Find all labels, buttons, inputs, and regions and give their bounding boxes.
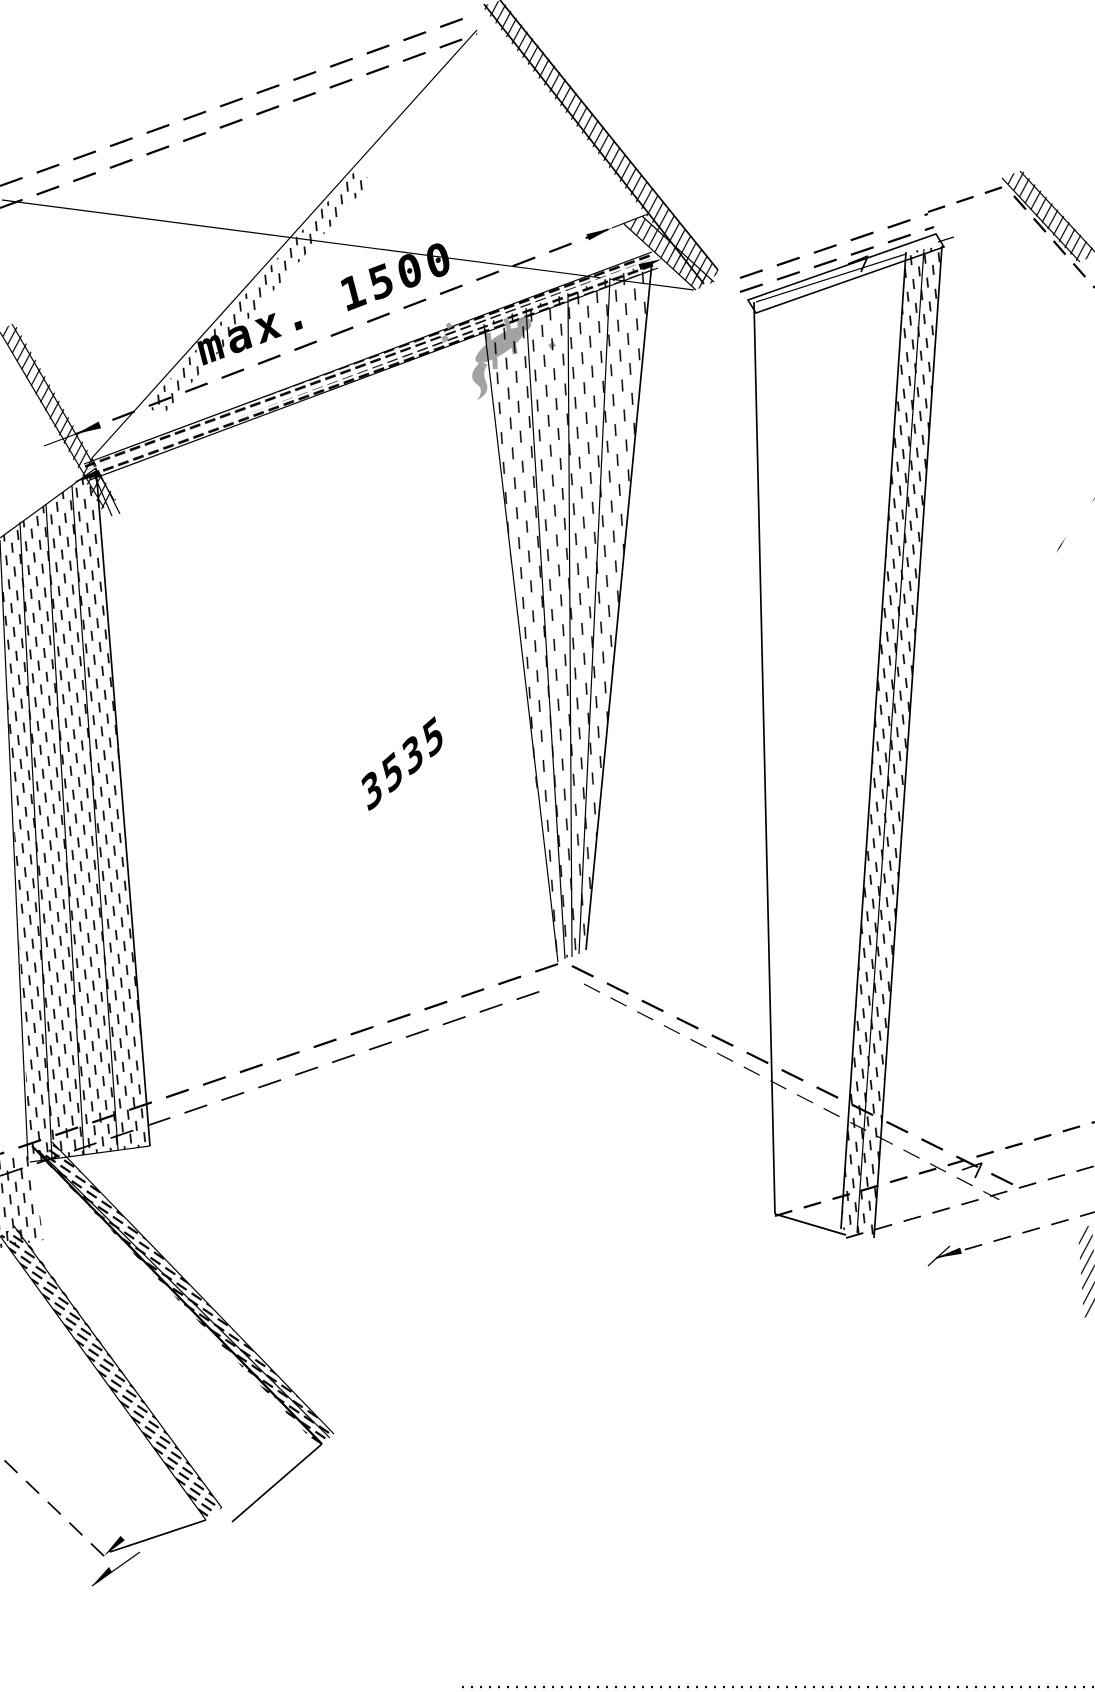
technical-drawing-canvas: max. 1500 bbox=[0, 0, 1095, 1692]
lower-frame-hatch bbox=[0, 1142, 334, 1586]
dimension-arrow-right bbox=[587, 228, 613, 240]
conveyor-deck-sections: 3535 bbox=[357, 262, 652, 962]
dimension-label-length: 3535 bbox=[357, 703, 452, 824]
dimension-arrow-left bbox=[76, 422, 101, 435]
right-column-panel bbox=[740, 214, 954, 1238]
left-side-rail-hatch bbox=[0, 468, 150, 1162]
